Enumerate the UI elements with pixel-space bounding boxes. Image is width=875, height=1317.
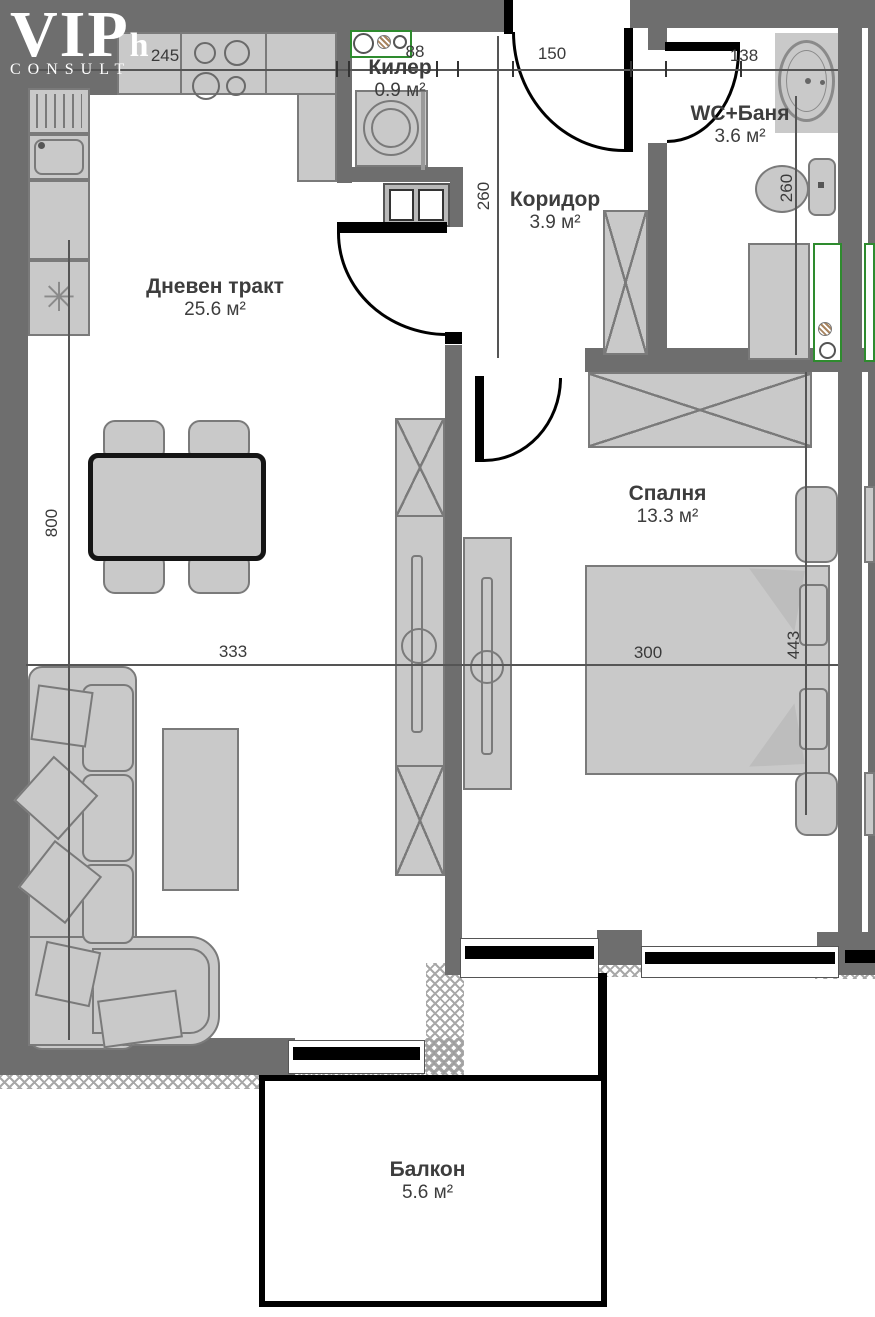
tv-unit-cabinet-bottom: [395, 765, 445, 876]
dimension-line-bedroom-depth: [805, 372, 807, 815]
room-area: 25.6 м²: [95, 299, 335, 321]
neighbor-furniture: [864, 486, 875, 563]
dim-bathroom-opening: 138: [722, 46, 766, 66]
fridge-snowflake-icon: ✳: [42, 276, 76, 320]
cooktop-burner-icon: [226, 76, 246, 96]
sink-bowl-icon: [353, 33, 374, 54]
kitchen-counter-left: [28, 180, 90, 260]
living-door-arc: [337, 233, 447, 336]
room-area: 13.3 м²: [595, 506, 740, 528]
dimension-line-living-depth: [68, 240, 70, 1040]
dim-bedroom-depth: 443: [784, 615, 804, 675]
neighbor-furniture: [864, 772, 875, 836]
kitchen-counter-corner: [297, 93, 337, 182]
room-name: WC+Баня: [665, 102, 815, 126]
dim-living-width: 333: [203, 642, 263, 662]
cooktop-burner-icon: [192, 72, 220, 100]
basin-tap-icon: [805, 78, 811, 84]
dim-entrance-opening: 150: [530, 44, 574, 64]
faucet-icon: [38, 142, 45, 149]
dim-tick: [457, 61, 459, 77]
wall-top-right: [630, 0, 875, 28]
room-label-storage: Килер 0.9 м²: [345, 56, 455, 102]
washer-drum-inner-icon: [371, 108, 411, 148]
bedroom-window: [465, 946, 594, 959]
room-name: Килер: [345, 56, 455, 80]
basin-tap-icon: [820, 80, 825, 85]
bedroom-door-arc: [484, 378, 562, 462]
wall-right: [838, 28, 862, 975]
shower-tray: [748, 243, 810, 360]
bedroom-wardrobe: [588, 372, 812, 448]
dining-table: [88, 453, 266, 561]
room-area: 3.6 м²: [665, 126, 815, 148]
balcony-divider: [598, 973, 607, 1077]
cabinet-door-icon: [389, 189, 414, 221]
floor-plan: ✳: [0, 0, 875, 1317]
bedroom-window: [645, 952, 835, 964]
room-label-living: Дневен тракт 25.6 м²: [95, 275, 335, 321]
tv-unit-cabinet-top: [395, 418, 445, 517]
shower-drain-icon: [818, 322, 832, 336]
room-area: 3.9 м²: [480, 212, 630, 234]
nightstand: [795, 772, 838, 836]
pillow: [799, 688, 828, 750]
room-label-balcony: Балкон 5.6 м²: [355, 1158, 500, 1204]
dim-tick: [512, 61, 514, 77]
room-name: Дневен тракт: [95, 275, 335, 299]
living-door-leaf: [337, 222, 447, 233]
room-name: Спалня: [595, 482, 740, 506]
shower-head-icon: [819, 342, 836, 359]
entrance-jamb: [504, 0, 513, 34]
wall-storage-bottom: [325, 167, 463, 182]
cooktop-burner-icon: [224, 40, 250, 66]
dim-tick: [665, 61, 667, 77]
neighbor-window: [845, 950, 875, 963]
room-label-bedroom: Спалня 13.3 м²: [595, 482, 740, 528]
logo-tagline: CONSULT: [10, 62, 149, 78]
tv-mount-icon: [470, 650, 504, 684]
wall-end-cap: [445, 332, 462, 344]
wall-window-pillar: [597, 930, 642, 965]
dim-living-depth: 800: [42, 493, 62, 553]
room-label-bathroom: WC+Баня 3.6 м²: [665, 102, 815, 148]
nightstand: [795, 486, 838, 563]
vip-consult-logo: VIPh CONSULT: [10, 2, 149, 78]
dim-tick: [630, 61, 632, 77]
room-name: Коридор: [480, 188, 630, 212]
throw-pillow: [30, 684, 93, 747]
drain-pipe: [421, 92, 425, 170]
flush-button-icon: [818, 182, 824, 188]
dimension-line-mid: [26, 664, 838, 666]
drain-icon: [377, 35, 391, 49]
room-area: 0.9 м²: [345, 80, 455, 102]
counter-divider: [265, 32, 267, 95]
dim-bathroom-depth: 260: [777, 158, 797, 218]
room-name: Балкон: [355, 1158, 500, 1182]
fridge: ✳: [28, 260, 90, 336]
wall-storage-stub: [450, 167, 463, 227]
neighbor-fixture: [864, 243, 875, 362]
room-label-corridor: Коридор 3.9 м²: [480, 188, 630, 234]
coffee-table: [162, 728, 239, 891]
tv-mount-icon: [401, 628, 437, 664]
cabinet-door-icon: [418, 189, 444, 221]
insulation-hatch-corner: [423, 1038, 463, 1074]
logo-sub: h: [130, 27, 149, 64]
dim-tick: [336, 61, 338, 77]
entrance-door-leaf: [624, 28, 633, 152]
dish-rack-icon: [36, 94, 82, 128]
wall-living-bedroom: [445, 345, 462, 975]
dim-bedroom-width: 300: [618, 643, 678, 663]
bedroom-door-leaf: [475, 376, 484, 462]
wall-corridor-bath: [648, 143, 667, 348]
cooktop-burner-icon: [194, 42, 216, 64]
balcony-door-window: [293, 1047, 420, 1060]
wall-left: [0, 0, 28, 1075]
room-area: 5.6 м²: [355, 1182, 500, 1204]
